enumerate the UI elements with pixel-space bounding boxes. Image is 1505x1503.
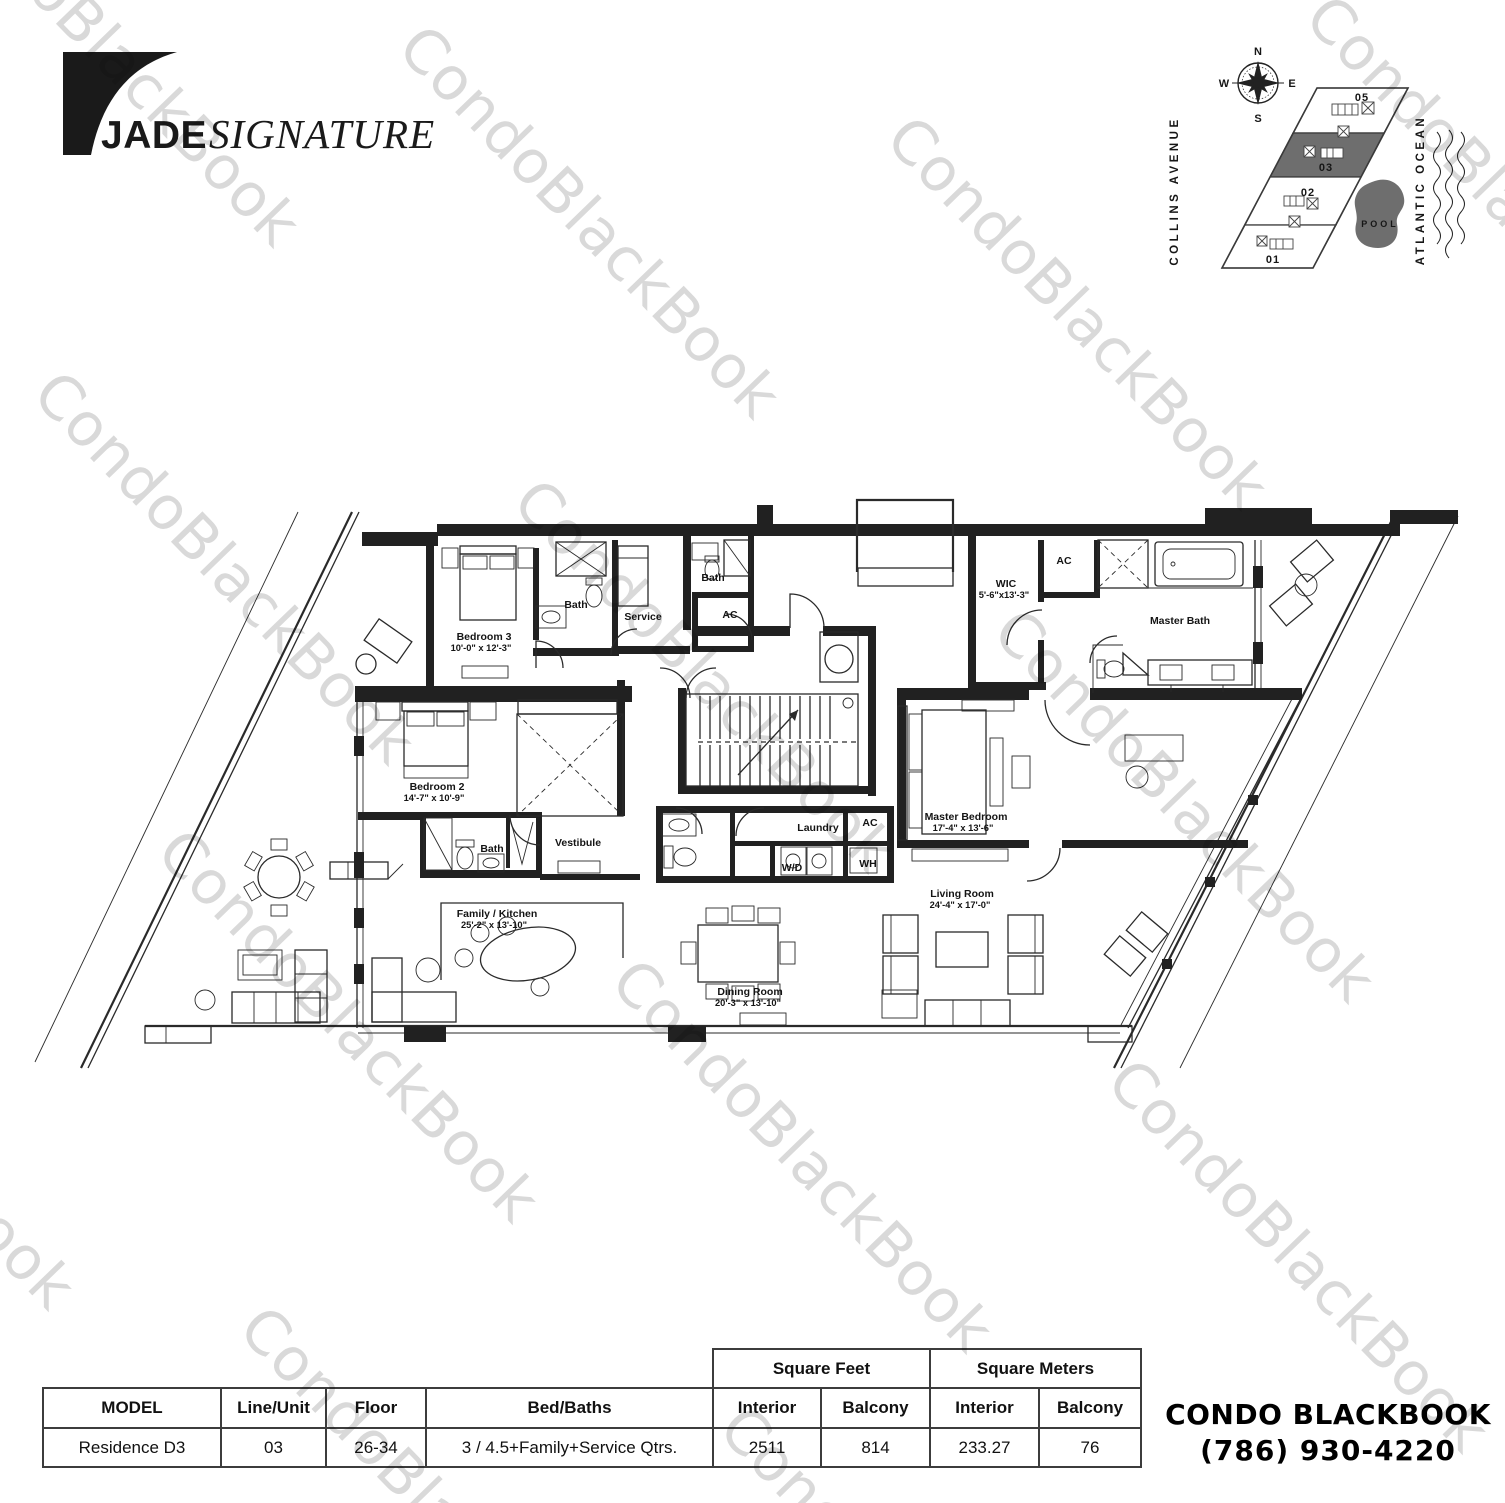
room-dining-dims: 20'-3" x 13'-10" — [715, 998, 781, 1008]
room-bedroom3: Bedroom 3 — [457, 631, 512, 643]
cell-balcony-sm: 76 — [1039, 1428, 1141, 1467]
room-wic-dims: 5'-6"x13'-3" — [979, 590, 1029, 600]
room-vestibule: Vestibule — [555, 837, 601, 849]
group-header-square-feet: Square Feet — [713, 1349, 930, 1388]
room-living: Living Room — [930, 888, 994, 900]
col-header-interior-sm: Interior — [930, 1388, 1039, 1428]
window-walls — [354, 540, 1300, 1028]
master-vanity — [1148, 660, 1252, 685]
cell-model: Residence D3 — [43, 1428, 221, 1467]
phone-number: (786) 930-4220 — [1152, 1434, 1504, 1467]
table-spacer — [43, 1349, 713, 1388]
room-wd: W/D — [782, 862, 803, 874]
room-bath3: Bath — [480, 843, 503, 855]
col-header-balcony-sf: Balcony — [821, 1388, 930, 1428]
brand-line: CONDO BLACKBOOK — [1152, 1398, 1504, 1431]
brand-blackbook: BLACKBOOK — [1293, 1398, 1491, 1431]
group-header-square-meters: Square Meters — [930, 1349, 1141, 1388]
room-master-bath: Master Bath — [1150, 615, 1210, 627]
logo-signature: SIGNATURE — [209, 111, 435, 157]
room-bedroom2: Bedroom 2 — [410, 781, 465, 793]
site-key-plan: N E S W COLLINS AVENUE ATLANTIC OCEAN — [1150, 30, 1490, 295]
ocean-waves-icon — [1434, 130, 1465, 258]
room-bedroom3-dims: 10'-0" x 12'-3" — [451, 643, 512, 653]
jade-signature-logo: JADE SIGNATURE — [63, 52, 493, 162]
col-header-bed-baths: Bed/Baths — [426, 1388, 713, 1428]
compass-w: W — [1219, 78, 1230, 90]
floor-plan-drawing: Bedroom 3 10'-0" x 12'-3" Bath Service B… — [30, 490, 1470, 1085]
room-bedroom2-dims: 14'-7" x 10'-9" — [404, 793, 465, 803]
unit-label-03: 03 — [1319, 162, 1333, 174]
unit-label-01: 01 — [1266, 254, 1280, 266]
room-master-bedroom-dims: 17'-4" x 13'-6" — [933, 823, 994, 833]
unit-label-02: 02 — [1301, 187, 1315, 199]
cell-interior-sf: 2511 — [713, 1428, 821, 1467]
cell-floor: 26-34 — [326, 1428, 426, 1467]
balcony-furniture — [195, 540, 1333, 1023]
room-wic: WIC — [996, 578, 1017, 590]
compass-n: N — [1254, 46, 1262, 58]
room-ac1: AC — [722, 609, 738, 621]
pool-shape — [1355, 180, 1405, 248]
stairs-and-shafts — [517, 500, 953, 816]
col-header-model: MODEL — [43, 1388, 221, 1428]
cell-balcony-sf: 814 — [821, 1428, 930, 1467]
floorplan-sheet: JADE SIGNATURE N E S W C — [0, 0, 1505, 1503]
room-dining: Dining Room — [717, 986, 782, 998]
compass-icon: N E S W — [1219, 46, 1296, 125]
room-wh: WH — [859, 858, 877, 870]
unit-label-05: 05 — [1355, 92, 1369, 104]
spec-table: Square Feet Square Meters MODEL Line/Uni… — [42, 1348, 1142, 1468]
room-ac3: AC — [862, 817, 878, 829]
room-family-kitchen-dims: 25'-2" x 13'-10" — [461, 920, 527, 930]
room-labels: Bedroom 3 10'-0" x 12'-3" Bath Service B… — [404, 555, 1210, 1008]
cell-interior-sm: 233.27 — [930, 1428, 1039, 1467]
collins-avenue-label: COLLINS AVENUE — [1169, 116, 1181, 265]
col-header-line-unit: Line/Unit — [221, 1388, 326, 1428]
room-living-dims: 24'-4" x 17'-0" — [930, 900, 991, 910]
door-swings — [510, 594, 1148, 881]
col-header-balcony-sm: Balcony — [1039, 1388, 1141, 1428]
col-header-floor: Floor — [326, 1388, 426, 1428]
watermark-text: CondoBlackBook — [1188, 1488, 1505, 1503]
cell-line-unit: 03 — [221, 1428, 326, 1467]
room-service: Service — [624, 611, 662, 623]
room-bath2: Bath — [701, 572, 724, 584]
brand-condo: CONDO — [1165, 1398, 1282, 1431]
room-family-kitchen: Family / Kitchen — [457, 908, 538, 920]
cell-bed-baths: 3 / 4.5+Family+Service Qtrs. — [426, 1428, 713, 1467]
col-header-interior-sf: Interior — [713, 1388, 821, 1428]
logo-jade: JADE — [101, 114, 207, 157]
atlantic-ocean-label: ATLANTIC OCEAN — [1415, 115, 1427, 265]
compass-s: S — [1254, 113, 1261, 125]
room-laundry: Laundry — [797, 822, 839, 834]
room-ac2: AC — [1056, 555, 1072, 567]
pool-label: POOL — [1361, 219, 1399, 229]
contact-block: CONDO BLACKBOOK (786) 930-4220 — [1152, 1398, 1504, 1467]
stair-shaft — [686, 694, 858, 786]
room-bath1: Bath — [564, 599, 587, 611]
room-master-bedroom: Master Bedroom — [925, 811, 1008, 823]
compass-e: E — [1288, 78, 1295, 90]
